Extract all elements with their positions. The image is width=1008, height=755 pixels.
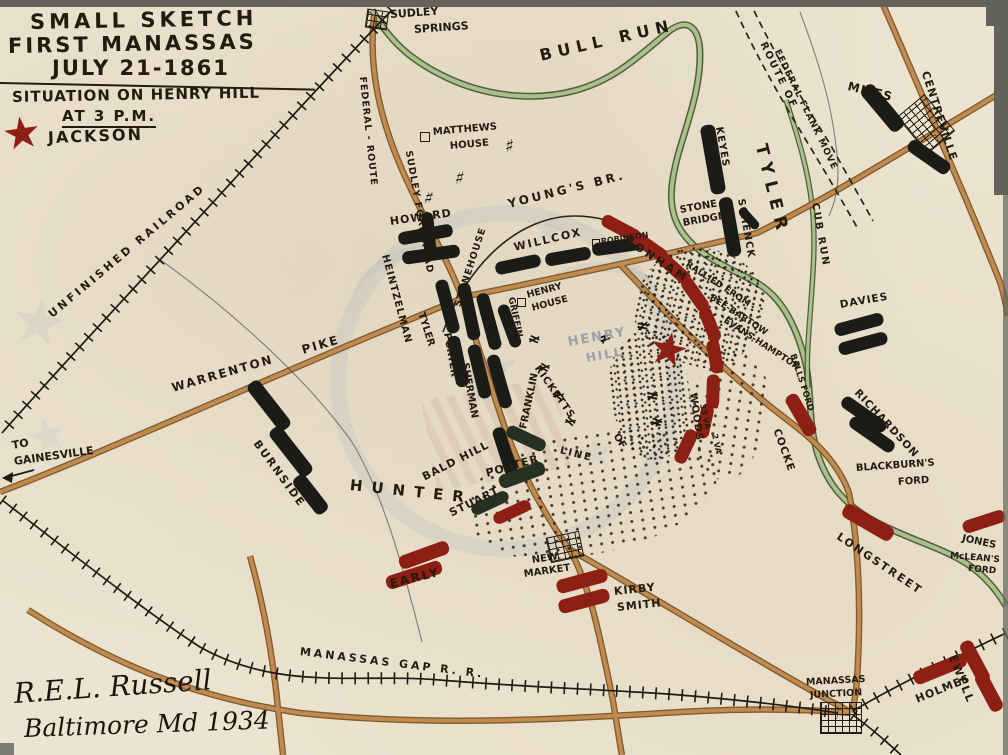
label-sudley-springs: SUDLEY	[390, 6, 439, 20]
map-subtitle-line1: SITUATION ON HENRY HILL	[12, 86, 260, 105]
label-manassas-junction-2: JUNCTION	[810, 688, 863, 700]
manassas-sketch-map: ★ ★ ★ ★ ★	[0, 0, 1008, 755]
artillery-symbol: ≠	[635, 317, 651, 335]
legend-jackson: JACKSON	[48, 127, 144, 146]
matthews-house-symbol	[420, 132, 430, 142]
label-to-gainesville-1: TO	[11, 437, 30, 451]
henry-house-symbol	[517, 298, 526, 307]
map-title-line2: FIRST MANASSAS	[8, 32, 257, 57]
unit-bar-jackson-line	[706, 374, 720, 408]
map-title-line3: JULY 21-1861	[52, 58, 230, 79]
photo-edge-right	[994, 0, 1008, 195]
photo-edge-right-low	[1003, 195, 1008, 755]
photo-edge-top	[0, 0, 1008, 7]
hayfield-symbol: ♯	[504, 138, 515, 157]
manassas-junction-town	[820, 702, 862, 734]
jackson-legend-star-icon: ★	[0, 109, 44, 158]
photo-edge-bottom-left	[0, 743, 14, 755]
sudley-springs-town	[365, 9, 389, 31]
